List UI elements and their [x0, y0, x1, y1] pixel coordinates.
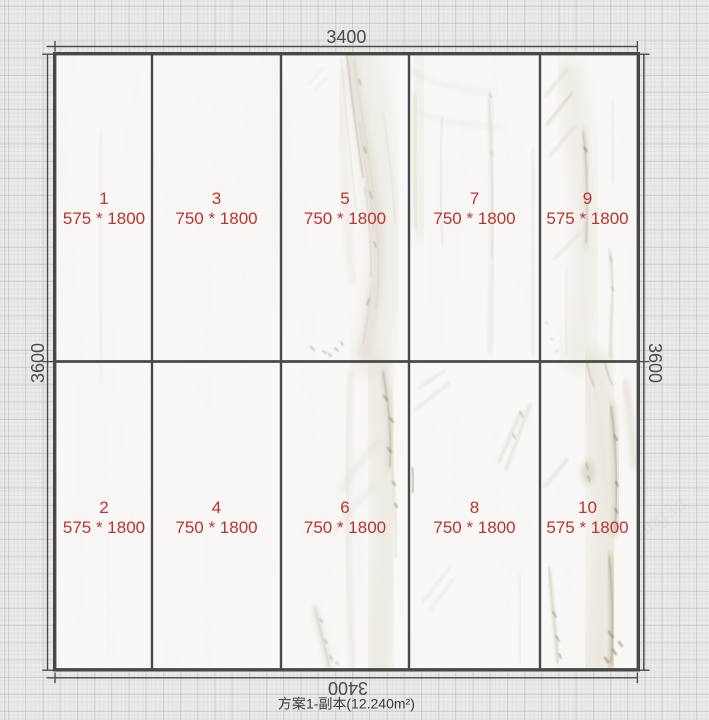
svg-text:575 * 1800: 575 * 1800: [546, 209, 628, 228]
svg-text:750 * 1800: 750 * 1800: [433, 209, 515, 228]
svg-text:750 * 1800: 750 * 1800: [304, 209, 386, 228]
svg-text:6: 6: [340, 498, 349, 517]
svg-text:575 * 1800: 575 * 1800: [546, 518, 628, 537]
svg-text:2: 2: [99, 498, 108, 517]
svg-text:1: 1: [99, 189, 108, 208]
svg-text:10: 10: [578, 498, 597, 517]
svg-text:1-: 1-: [306, 696, 319, 712]
svg-text:750 * 1800: 750 * 1800: [175, 209, 257, 228]
svg-text:3600: 3600: [28, 343, 48, 383]
svg-text:750 * 1800: 750 * 1800: [433, 518, 515, 537]
svg-text:8: 8: [470, 498, 479, 517]
svg-text:9: 9: [583, 189, 592, 208]
svg-text:575 * 1800: 575 * 1800: [63, 209, 145, 228]
svg-text:4: 4: [212, 498, 221, 517]
svg-text:3400: 3400: [326, 27, 366, 47]
svg-text:750 * 1800: 750 * 1800: [175, 518, 257, 537]
svg-text:3600: 3600: [645, 343, 665, 383]
svg-text:5: 5: [340, 189, 349, 208]
svg-text:7: 7: [470, 189, 479, 208]
svg-text:(12.240m²): (12.240m²): [346, 696, 414, 712]
svg-text:750 * 1800: 750 * 1800: [304, 518, 386, 537]
svg-text:575 * 1800: 575 * 1800: [63, 518, 145, 537]
svg-text:3: 3: [212, 189, 221, 208]
